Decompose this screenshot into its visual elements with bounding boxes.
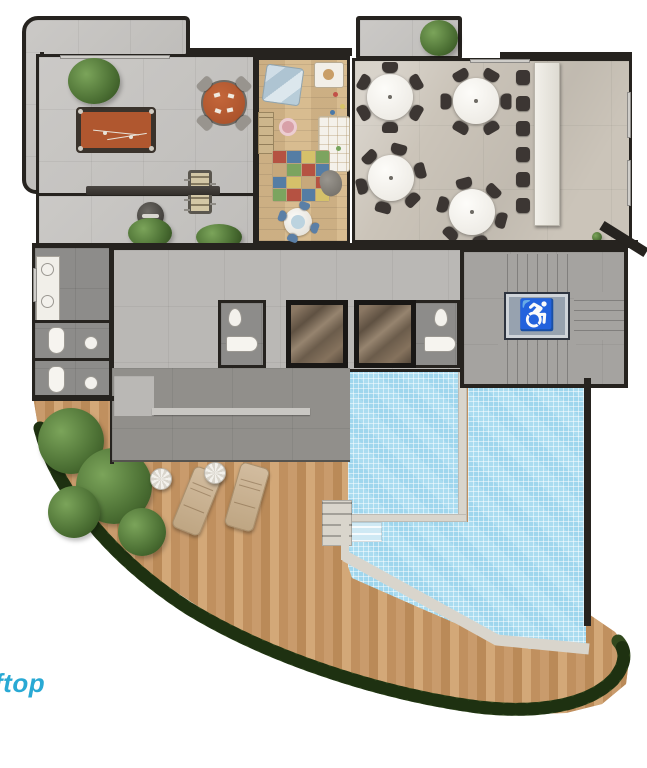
window [60, 55, 170, 59]
play-mat-tile [287, 151, 300, 163]
wc [218, 300, 266, 368]
play-mat-tile [273, 189, 286, 201]
dining-chair [455, 176, 473, 191]
vanity-counter [36, 256, 60, 322]
dining-chair [382, 122, 398, 133]
pool-right-wall [584, 378, 591, 626]
toy [336, 146, 341, 151]
toilet [226, 336, 258, 352]
bar-stools [516, 70, 532, 230]
bar-stool [516, 198, 530, 213]
toy-shelf [258, 112, 274, 154]
bar-stool [516, 70, 530, 85]
side-table [204, 462, 226, 484]
toilet [424, 336, 456, 352]
play-mat-tile [273, 151, 286, 163]
wall [352, 240, 638, 248]
elevator [354, 300, 416, 368]
window [33, 268, 37, 302]
plant [420, 20, 458, 56]
play-mat-tile [302, 189, 315, 201]
dining-chair [436, 196, 451, 214]
play-mat-tile [302, 164, 315, 176]
wall [188, 48, 352, 56]
dining-table [367, 74, 413, 120]
play-mat-tile [302, 151, 315, 163]
wall [500, 52, 632, 59]
dining-chair [441, 94, 452, 110]
side-table [150, 468, 172, 490]
wall [32, 396, 114, 401]
billiards-table [76, 107, 156, 153]
elevator [286, 300, 348, 368]
wall [32, 358, 112, 361]
sink [84, 336, 98, 350]
pool-ladder [322, 500, 352, 546]
toilet [48, 366, 65, 393]
rooftop-floorplan: ♿ ftop [0, 0, 647, 768]
platform [114, 376, 154, 416]
pool-steps [348, 522, 382, 542]
toy [330, 110, 335, 115]
toy [340, 104, 345, 109]
play-teepee [262, 64, 305, 107]
dining-chair [501, 94, 512, 110]
window [470, 59, 530, 63]
toilet [48, 327, 65, 354]
play-mat-tile [302, 177, 315, 189]
dining-table [449, 189, 495, 235]
kids-table [284, 208, 312, 236]
bar-stool [516, 172, 530, 187]
tree [118, 508, 166, 556]
window [627, 160, 631, 206]
pool-kids-section [348, 372, 460, 514]
sink [434, 308, 448, 327]
card-table [201, 80, 247, 126]
dining-table [453, 78, 499, 124]
play-mat-tile [287, 164, 300, 176]
stair-flight [498, 254, 576, 294]
stair-flight [574, 292, 624, 340]
stair-flight [498, 338, 576, 384]
bar-stool [516, 121, 530, 136]
window [627, 92, 631, 138]
play-mat-tile [287, 177, 300, 189]
wheelchair-lift: ♿ [504, 292, 570, 340]
toy-bed [314, 62, 344, 88]
balcony-terrace [22, 16, 190, 58]
toy [333, 92, 338, 97]
pool-walkway [348, 514, 467, 522]
bar-stool [516, 147, 530, 162]
wheelchair-icon: ♿ [518, 301, 555, 331]
step-edge [152, 408, 310, 415]
dining-table [368, 155, 414, 201]
bar-stool [516, 96, 530, 111]
plant [68, 58, 120, 104]
plan-title: ftop [0, 668, 45, 699]
sink [228, 308, 242, 327]
sideboard-bench [86, 186, 220, 195]
round-rug [279, 118, 297, 136]
sink [84, 376, 98, 390]
pool-divider-walkway [458, 372, 467, 522]
play-mat-tile [273, 164, 286, 176]
bar-counter [534, 62, 560, 226]
play-mat-tile [287, 189, 300, 201]
tree [48, 486, 100, 538]
play-mat-tile [273, 177, 286, 189]
play-mat-tile [316, 151, 329, 163]
dining-chair [382, 62, 398, 73]
wall [32, 320, 112, 323]
